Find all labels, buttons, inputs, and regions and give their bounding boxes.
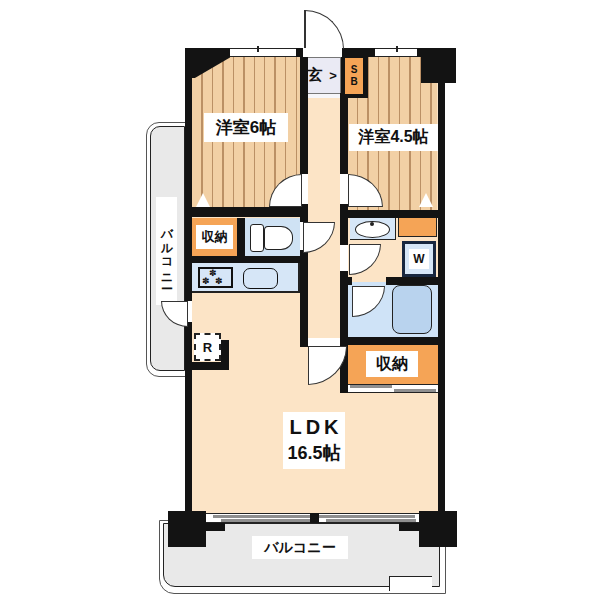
toilet-bowl-icon — [264, 226, 293, 250]
wall-below-bedroom1 — [185, 207, 308, 217]
entrance-label: 玄 — [305, 64, 325, 86]
wall-hallway-left — [300, 57, 308, 174]
entrance-door-leaf — [304, 10, 306, 48]
sliding-sash — [326, 519, 416, 522]
wall-hallway-right — [340, 93, 348, 174]
washing-machine-label: W — [409, 249, 429, 269]
balcony-bottom-label: バルコニー — [252, 536, 348, 559]
sliding-sash — [213, 515, 311, 518]
shoe-box-label: SB — [350, 64, 359, 89]
wall-stub-bottom-left — [206, 523, 225, 531]
wall-closet-toilet-divider — [237, 218, 245, 256]
pillar-top-right — [421, 48, 456, 83]
wall-bathroom-closet — [340, 337, 445, 345]
sliding-sash — [319, 515, 415, 518]
wall-hallway-right — [340, 204, 348, 245]
sliding-sash — [221, 519, 313, 522]
bedroom1-niche-triangle — [196, 193, 210, 207]
bedroom2-niche-triangle — [419, 193, 433, 207]
floor-plan-page: { "plan_type": "apartment-floor-plan", "… — [0, 0, 600, 600]
window-center-post — [310, 513, 319, 523]
shoe-box: SB — [345, 58, 363, 94]
closet-right-label: 収納 — [366, 351, 418, 377]
bathtub-icon — [392, 285, 432, 334]
wall-below-toilet-row — [185, 256, 308, 263]
refrigerator-label: R — [197, 337, 218, 357]
stove-burner-icon: ✽ — [202, 277, 210, 286]
linen-shelf — [398, 216, 437, 237]
entrance-opening — [303, 48, 342, 57]
washroom-door-gap — [340, 245, 348, 271]
entrance-step-mark: > — [326, 66, 340, 84]
sliding-sash — [394, 389, 436, 392]
ldk-label-box: LDK 16.5帖 — [283, 412, 345, 469]
wall-left — [185, 48, 192, 512]
entrance-door-arc — [305, 10, 344, 49]
stove-burner-icon: ✽ — [215, 277, 223, 286]
sliding-sash — [350, 385, 392, 388]
wall-washroom-bathroom — [386, 277, 445, 285]
ldk-doorway-gap — [308, 338, 340, 346]
washbasin-tap-icon — [370, 222, 374, 226]
wall-fridge-stub-horizontal — [188, 362, 229, 370]
bedroom1-label: 洋室6帖 — [204, 113, 288, 142]
window-tick — [396, 46, 398, 52]
ldk-size: 16.5帖 — [287, 441, 340, 465]
bedroom2-door-gap — [340, 174, 348, 204]
kitchen-sink-icon — [243, 268, 278, 289]
toilet-tank-icon — [250, 224, 264, 252]
closet-left-label: 収納 — [196, 225, 233, 249]
ldk-name: LDK — [285, 416, 342, 439]
balcony-left-label: バルコニー — [156, 197, 177, 305]
wall-washroom-bathroom — [340, 277, 352, 285]
wall-hallway-left — [300, 250, 308, 347]
wall-below-bedroom2 — [340, 210, 445, 218]
wall-stub-bottom-right — [399, 523, 420, 531]
pillar-bottom-left — [168, 511, 206, 547]
balcony-bottom-rail-notch — [389, 576, 432, 591]
window-tick — [257, 46, 259, 52]
bedroom2-label: 洋室4.5帖 — [349, 124, 438, 151]
pillar-bottom-right — [419, 511, 457, 547]
